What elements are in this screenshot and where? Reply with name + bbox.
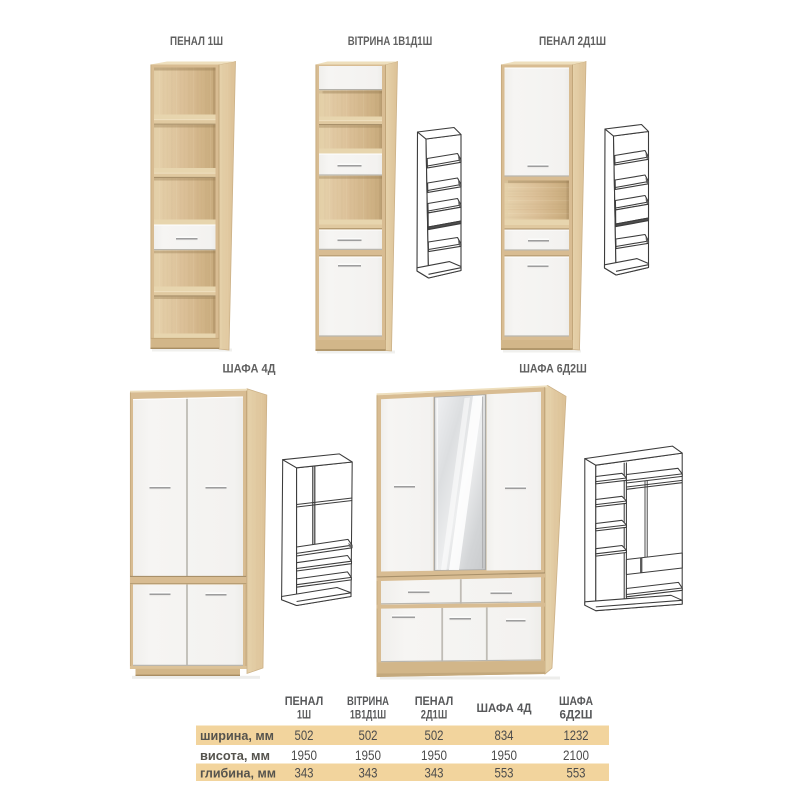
svg-text:1950: 1950 xyxy=(291,748,317,763)
svg-text:ШАФА 4Д: ШАФА 4Д xyxy=(477,701,532,715)
svg-text:ШАФА: ШАФА xyxy=(559,694,593,708)
svg-text:ПЕНАЛ: ПЕНАЛ xyxy=(415,694,454,708)
svg-text:глибина, мм: глибина, мм xyxy=(200,765,276,780)
svg-text:ПЕНАЛ: ПЕНАЛ xyxy=(285,694,324,708)
svg-text:343: 343 xyxy=(425,765,444,780)
svg-text:ПЕНАЛ 2Д1Ш: ПЕНАЛ 2Д1Ш xyxy=(539,34,606,48)
svg-text:2100: 2100 xyxy=(563,748,589,763)
svg-text:2Д1Ш: 2Д1Ш xyxy=(421,708,448,722)
svg-text:ВІТРИНА: ВІТРИНА xyxy=(347,694,389,708)
svg-text:553: 553 xyxy=(495,765,514,780)
svg-text:ВІТРИНА 1В1Д1Ш: ВІТРИНА 1В1Д1Ш xyxy=(348,34,433,48)
svg-text:ширина, мм: ширина, мм xyxy=(200,728,274,743)
svg-text:6Д2Ш: 6Д2Ш xyxy=(560,708,593,722)
svg-text:висота, мм: висота, мм xyxy=(200,748,270,763)
svg-text:502: 502 xyxy=(359,728,378,743)
svg-text:834: 834 xyxy=(495,728,514,743)
svg-text:ШАФА 4Д: ШАФА 4Д xyxy=(223,362,276,376)
svg-text:1950: 1950 xyxy=(421,748,447,763)
svg-text:553: 553 xyxy=(567,765,586,780)
svg-text:1232: 1232 xyxy=(564,728,589,743)
svg-text:502: 502 xyxy=(425,728,444,743)
svg-text:502: 502 xyxy=(295,728,314,743)
svg-text:343: 343 xyxy=(295,765,314,780)
svg-text:ПЕНАЛ 1Ш: ПЕНАЛ 1Ш xyxy=(170,34,223,48)
svg-text:1В1Д1Ш: 1В1Д1Ш xyxy=(350,708,386,722)
svg-text:1950: 1950 xyxy=(355,748,381,763)
svg-text:1950: 1950 xyxy=(491,748,517,763)
svg-text:ШАФА 6Д2Ш: ШАФА 6Д2Ш xyxy=(519,362,587,376)
svg-text:1Ш: 1Ш xyxy=(297,708,311,722)
svg-text:343: 343 xyxy=(359,765,378,780)
